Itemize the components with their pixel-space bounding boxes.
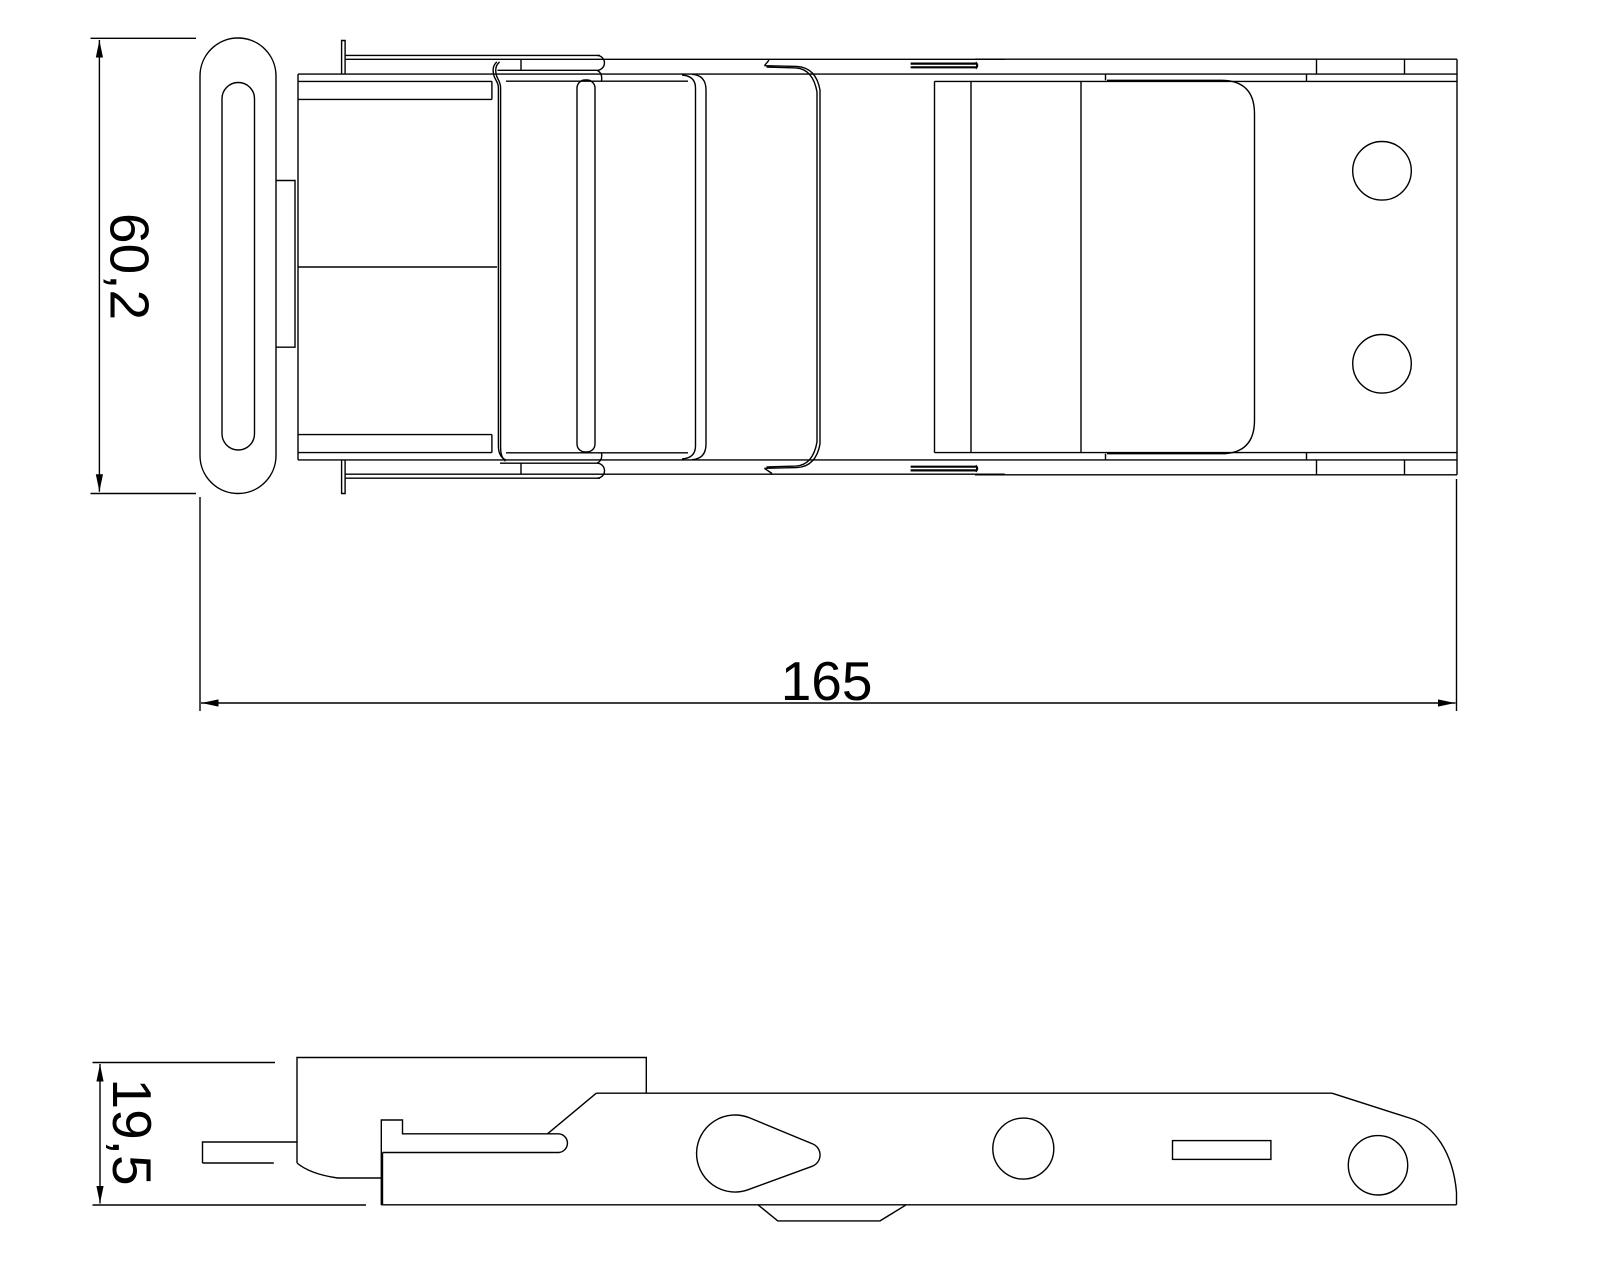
svg-text:19,5: 19,5 xyxy=(101,1078,163,1185)
svg-text:60,2: 60,2 xyxy=(99,213,161,320)
svg-text:165: 165 xyxy=(781,650,873,712)
